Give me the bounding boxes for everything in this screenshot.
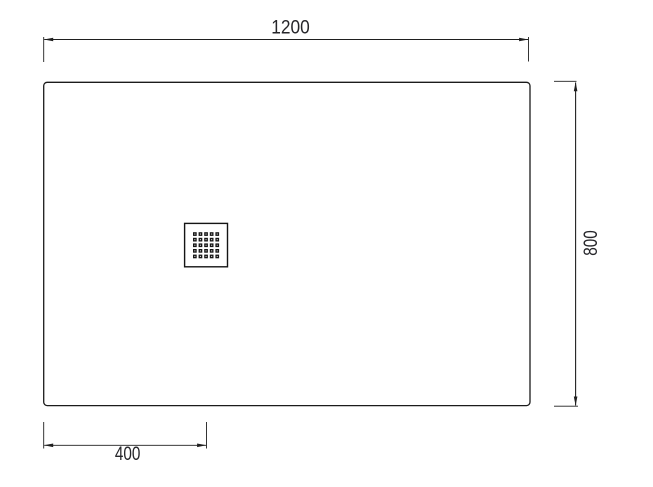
svg-text:800: 800	[581, 230, 602, 256]
svg-text:1200: 1200	[271, 16, 310, 38]
svg-text:400: 400	[115, 443, 141, 465]
